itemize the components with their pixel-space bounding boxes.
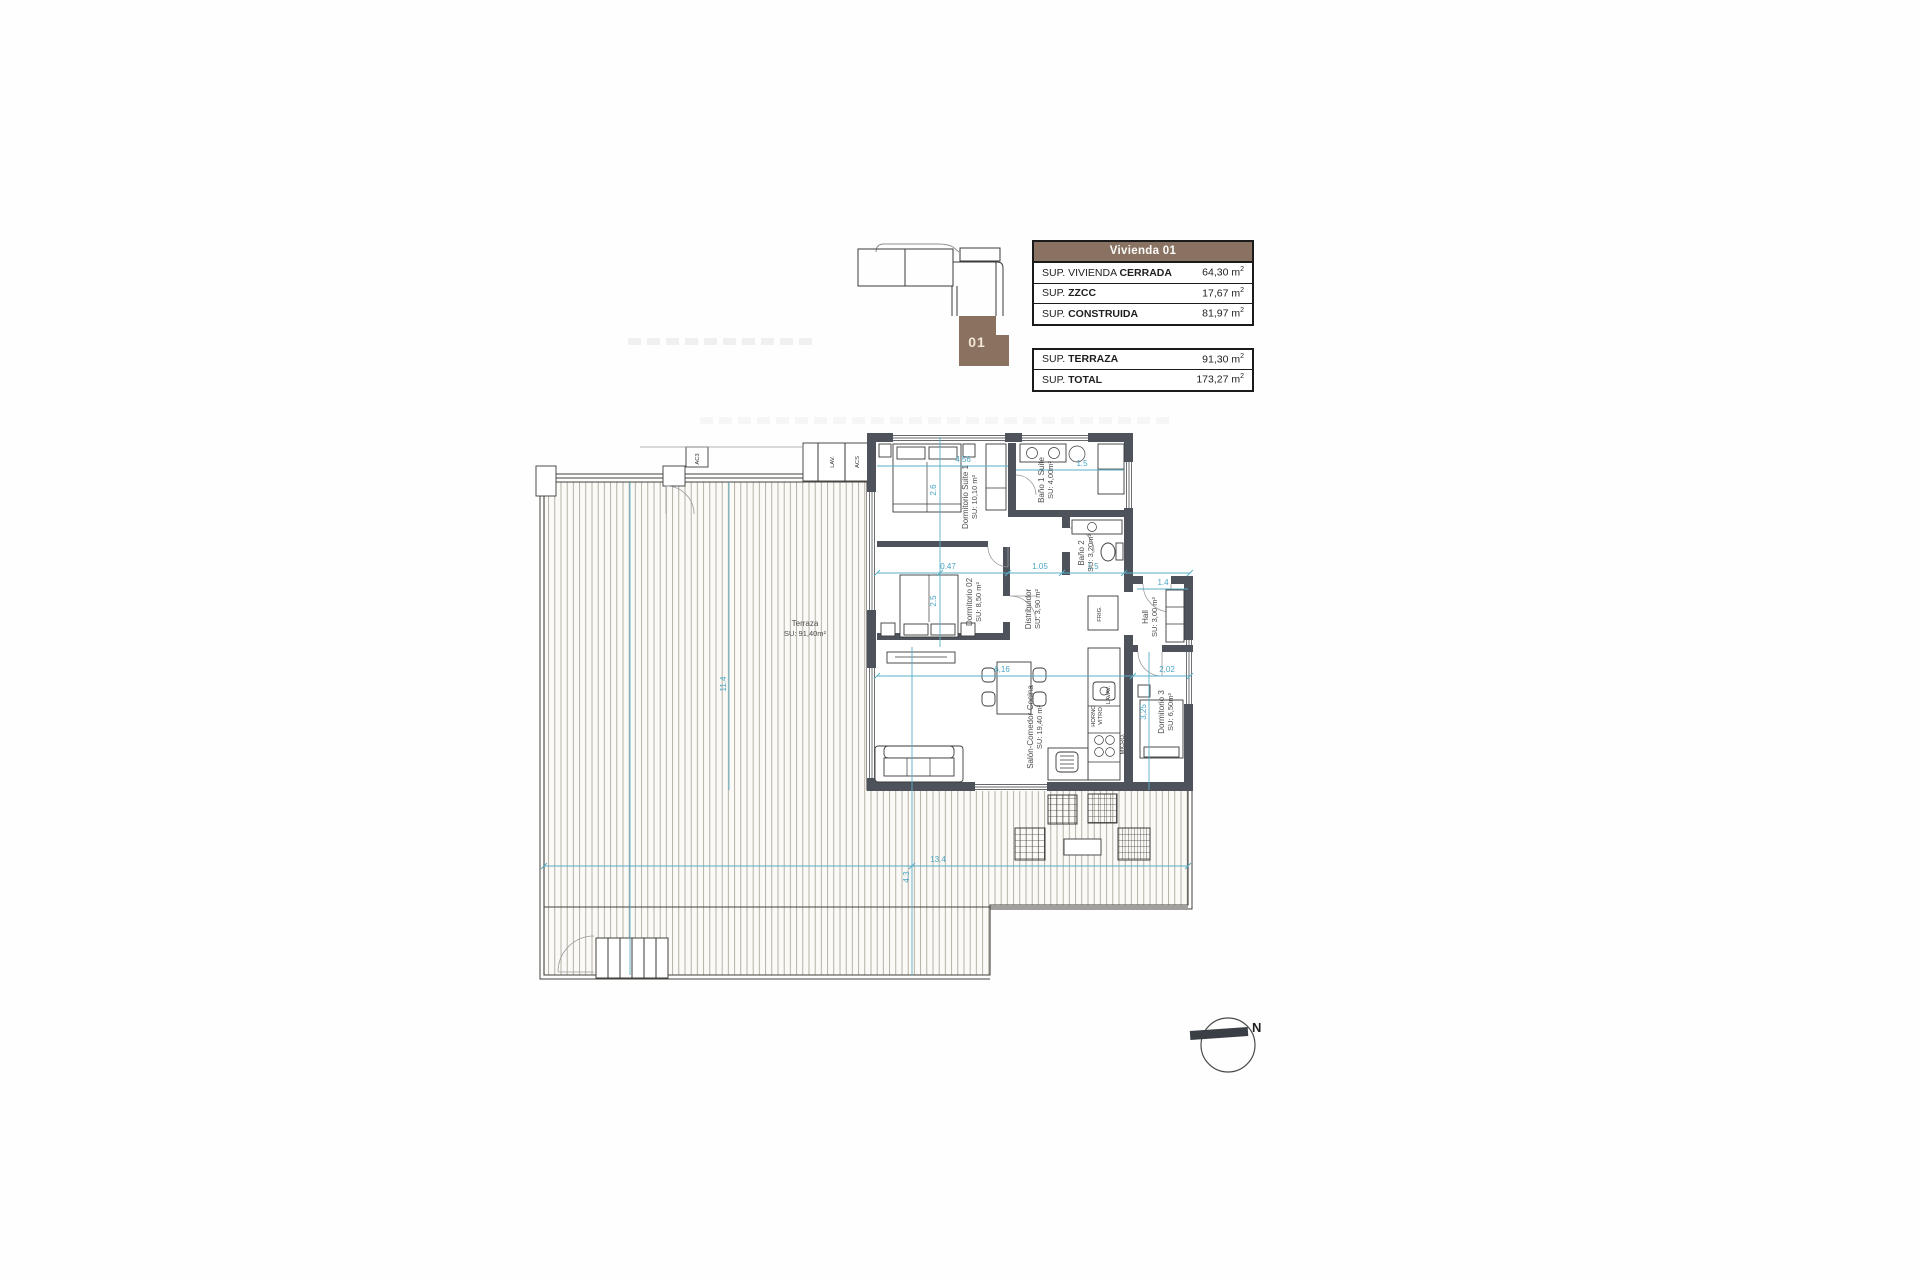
room-label-hall: Hall — [1141, 610, 1150, 624]
room-area-dorm2: SU: 8,50 m² — [974, 581, 983, 622]
room-area-dorm3: SU: 6,50m² — [1166, 693, 1175, 731]
room-label-dorm3: Dormitorio 3 — [1157, 690, 1166, 734]
room-label-bano1: Baño 1 Suite — [1037, 457, 1046, 503]
dim-dorm3-width: 2,02 — [1159, 665, 1175, 674]
dim-salon-width: 6,16 — [994, 665, 1010, 674]
room-label-bano2: Baño 2 — [1077, 540, 1086, 566]
dim-dorm2-depth: 2.5 — [929, 595, 938, 607]
totals-table: SUP. TERRAZA 91,30 m2 SUP. TOTAL 173,27 … — [1032, 348, 1254, 392]
keyplan-unit-number: 01 — [968, 334, 986, 350]
ac-unit: AC3 — [686, 447, 708, 467]
table-row: SUP. CONSTRUIDA 81,97 m2 — [1034, 304, 1252, 324]
compass-needle — [1190, 1027, 1248, 1040]
table-row: SUP. VIVIENDA CERRADA 64,30 m2 — [1034, 263, 1252, 284]
keyplan-lines — [952, 261, 996, 316]
row-label: SUP. — [1042, 353, 1068, 365]
row-label-bold: TOTAL — [1068, 374, 1102, 386]
faint-watermark — [700, 417, 1170, 424]
room-label-suite1: Dormitorio Suite 1 — [961, 464, 970, 529]
room-area-terraza: SU: 91,40m² — [784, 629, 827, 638]
terrace-column — [536, 466, 556, 496]
row-label: SUP. — [1042, 308, 1068, 320]
table-row: SUP. TOTAL 173,27 m2 — [1034, 370, 1252, 390]
north-compass: N — [1190, 1018, 1262, 1072]
terrace-column — [663, 466, 685, 486]
row-value: 173,27 m2 — [1196, 373, 1244, 386]
room-label-terraza: Terraza — [792, 619, 819, 628]
row-label: SUP. VIVIENDA — [1042, 267, 1119, 279]
hall-wardrobe — [1166, 590, 1184, 642]
row-value: 81,97 m2 — [1202, 307, 1244, 320]
keyplan-block-c — [960, 248, 1000, 261]
dim-terrace-bottom: 4.3 — [902, 871, 911, 883]
oven-label: HORNO — [1091, 705, 1097, 727]
dim-seg2: 1.05 — [1032, 562, 1048, 571]
dim-hall-width: 1.4 — [1157, 578, 1169, 587]
room-label-distribuidor: Distribuidor — [1024, 588, 1033, 629]
dim-suite-depth: 2.6 — [929, 484, 938, 496]
dim-dorm3-depth: 3,25 — [1139, 704, 1148, 720]
room-area-distribuidor: SU: 3,90 m² — [1033, 588, 1042, 629]
room-area-bano1: SU: 4,00m² — [1046, 461, 1055, 499]
room-area-hall: SU: 3,00 m² — [1150, 596, 1159, 637]
closet-acs-label: ACS — [855, 456, 861, 468]
keyplan-block-a — [858, 249, 905, 286]
terrace-closet: LAV. ACS — [803, 443, 868, 481]
floor-plan-sheet: 01 Vivienda 01 SUP. VIVIENDA CERRADA 64,… — [0, 0, 1920, 1280]
keyplan-site-line — [876, 244, 959, 252]
room-area-bano2: SU: 3,20m² — [1086, 534, 1095, 572]
row-label-bold: TERRAZA — [1068, 353, 1118, 365]
room-label-salon: Salón-Comedor-Cocina — [1026, 685, 1035, 769]
ac-unit-label: AC3 — [695, 453, 701, 464]
room-label-dorm2: Dormitorio 02 — [965, 577, 974, 626]
bed-suite-1 — [879, 444, 1006, 512]
dim-bath1-width: 1.5 — [1076, 459, 1088, 468]
dim-terrace-width: 13.4 — [930, 855, 946, 864]
closet-lav-label: LAV. — [830, 456, 836, 468]
area-summary-tables: Vivienda 01 SUP. VIVIENDA CERRADA 64,30 … — [1032, 240, 1254, 392]
floor-plan-drawing: LAV. ACS AC3 — [520, 425, 1280, 1085]
row-label-bold: CERRADA — [1119, 267, 1172, 279]
row-value: 64,30 m2 — [1202, 266, 1244, 279]
fridge-label: FRIG. — [1097, 606, 1103, 622]
row-value: 17,67 m2 — [1202, 287, 1244, 300]
row-label: SUP. — [1042, 374, 1068, 386]
keyplan-block-b — [905, 249, 953, 286]
row-label-bold: CONSTRUIDA — [1068, 308, 1138, 320]
faint-watermark — [628, 338, 813, 345]
room-area-suite1: SU: 10,10 m² — [970, 474, 979, 519]
microwave-label: MICRO. — [1120, 733, 1126, 754]
unit-table-header: Vivienda 01 — [1034, 242, 1252, 263]
table-row: SUP. TERRAZA 91,30 m2 — [1034, 350, 1252, 371]
hob-label: VITRO — [1098, 707, 1104, 725]
dim-seg1: 0.47 — [940, 562, 956, 571]
row-label: SUP. — [1042, 287, 1068, 299]
dim-suite-width: 4.56 — [955, 455, 971, 464]
room-area-salon: SU: 19,40 m² — [1035, 704, 1044, 749]
dishwasher-label: LAVAV. — [1106, 685, 1112, 704]
row-label-bold: ZZCC — [1068, 287, 1096, 299]
key-plan: 01 — [840, 225, 1035, 375]
dim-terrace-depth: 11.4 — [719, 676, 728, 692]
north-label: N — [1252, 1020, 1261, 1035]
row-value: 91,30 m2 — [1202, 353, 1244, 366]
table-row: SUP. ZZCC 17,67 m2 — [1034, 284, 1252, 305]
unit-area-table: Vivienda 01 SUP. VIVIENDA CERRADA 64,30 … — [1032, 240, 1254, 326]
